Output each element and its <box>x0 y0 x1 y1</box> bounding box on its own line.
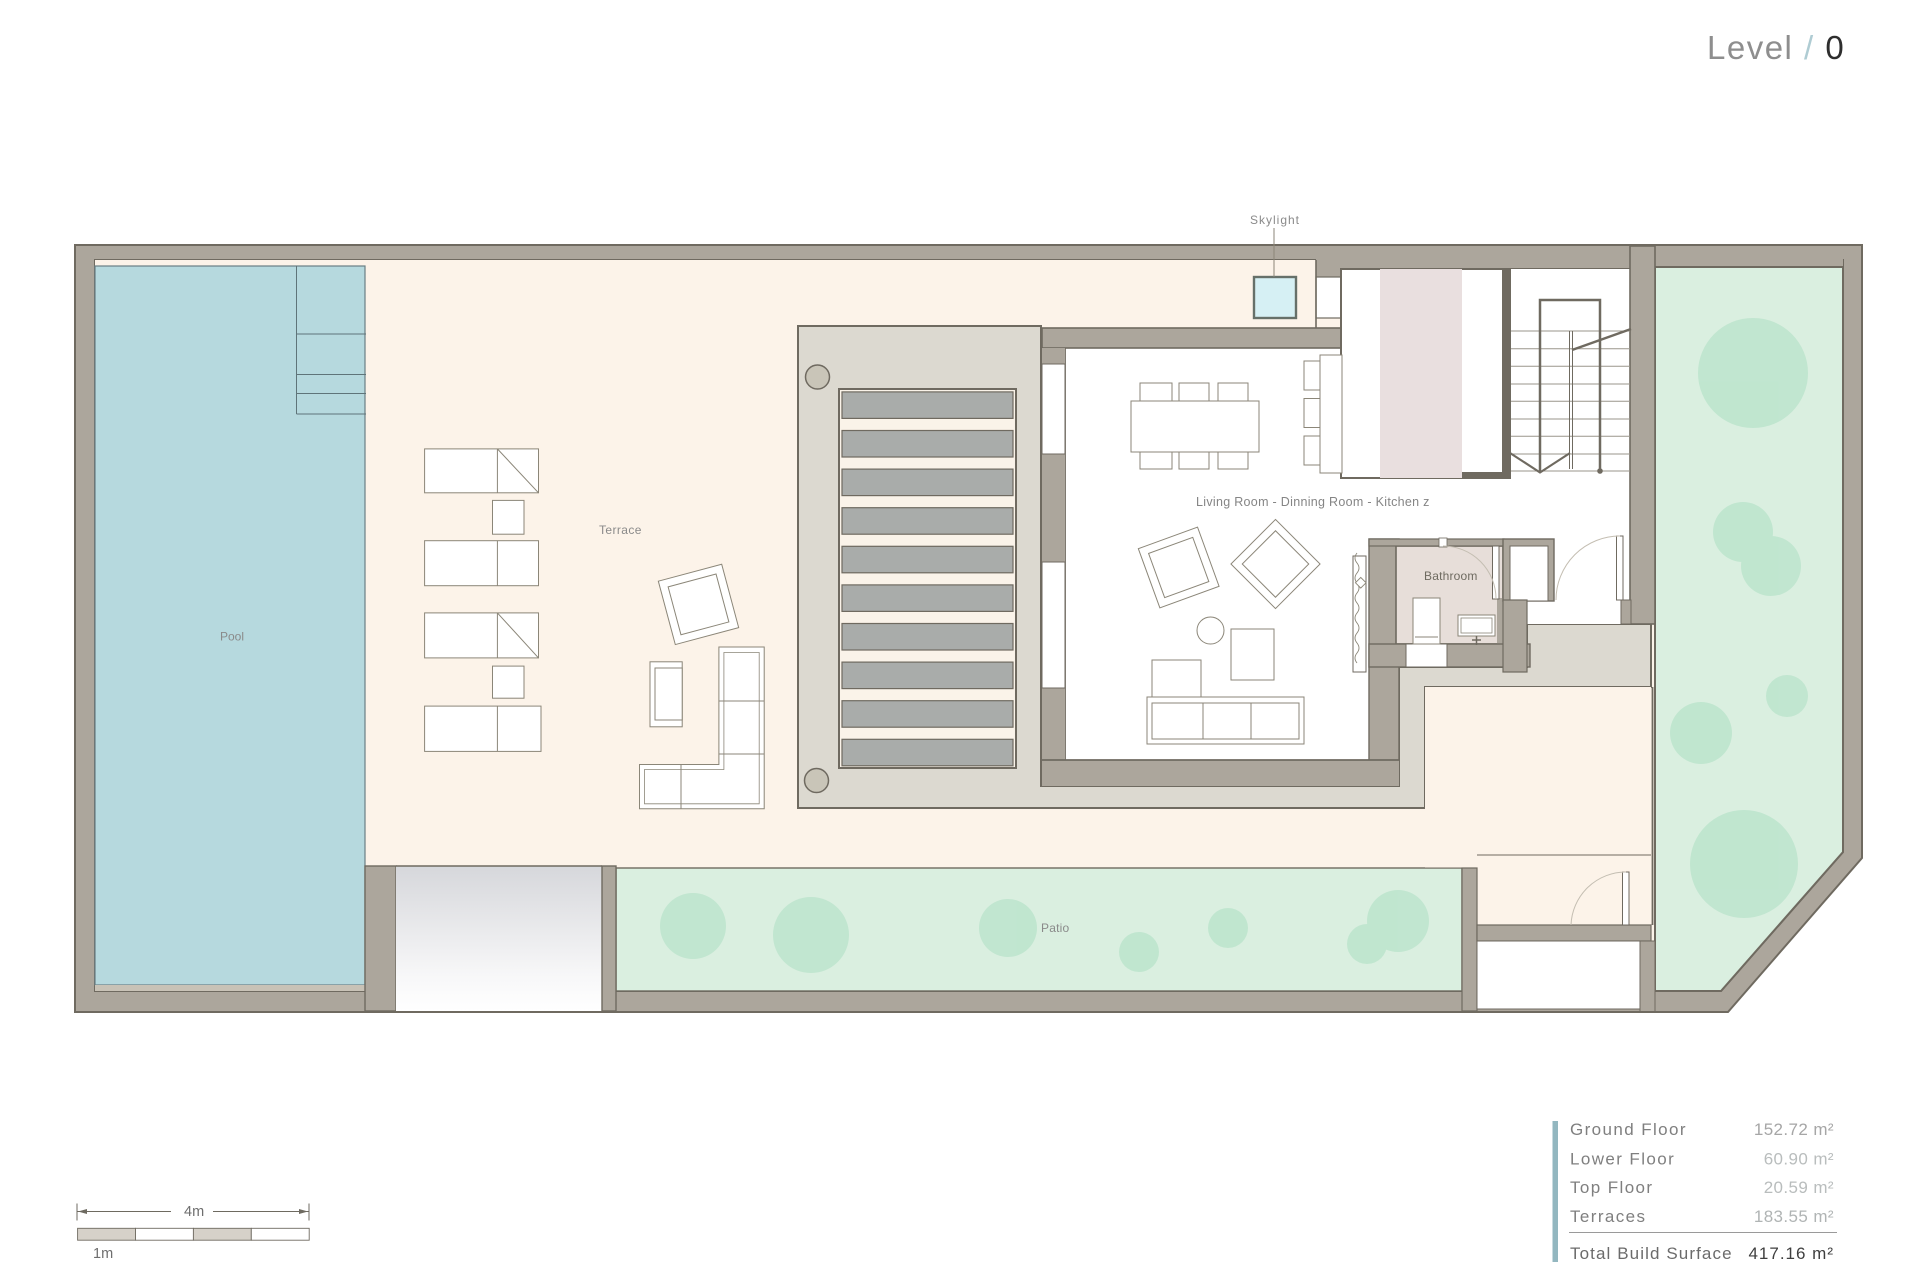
svg-text:Top Floor: Top Floor <box>1570 1178 1653 1197</box>
svg-text:Skylight: Skylight <box>1250 213 1300 227</box>
svg-text:Living Room - Dinning Room - K: Living Room - Dinning Room - Kitchen z <box>1196 495 1430 509</box>
svg-text:Bathroom: Bathroom <box>1424 569 1478 583</box>
svg-text:1m: 1m <box>93 1246 113 1262</box>
svg-text:Level / 0: Level / 0 <box>1707 29 1845 66</box>
svg-text:Lower Floor: Lower Floor <box>1570 1150 1675 1169</box>
svg-text:Pool: Pool <box>220 630 244 644</box>
svg-text:20.59 m²: 20.59 m² <box>1764 1178 1834 1197</box>
svg-text:60.90 m²: 60.90 m² <box>1764 1150 1834 1169</box>
svg-text:152.72 m²: 152.72 m² <box>1754 1120 1834 1139</box>
svg-text:Total Build Surface: Total Build Surface <box>1570 1244 1733 1263</box>
svg-text:Terrace: Terrace <box>599 523 642 537</box>
svg-text:183.55 m²: 183.55 m² <box>1754 1207 1834 1226</box>
svg-text:417.16 m²: 417.16 m² <box>1748 1244 1834 1263</box>
svg-text:Patio: Patio <box>1041 921 1069 935</box>
svg-text:Ground Floor: Ground Floor <box>1570 1120 1687 1139</box>
svg-text:4m: 4m <box>184 1204 204 1220</box>
svg-text:Terraces: Terraces <box>1570 1207 1646 1226</box>
